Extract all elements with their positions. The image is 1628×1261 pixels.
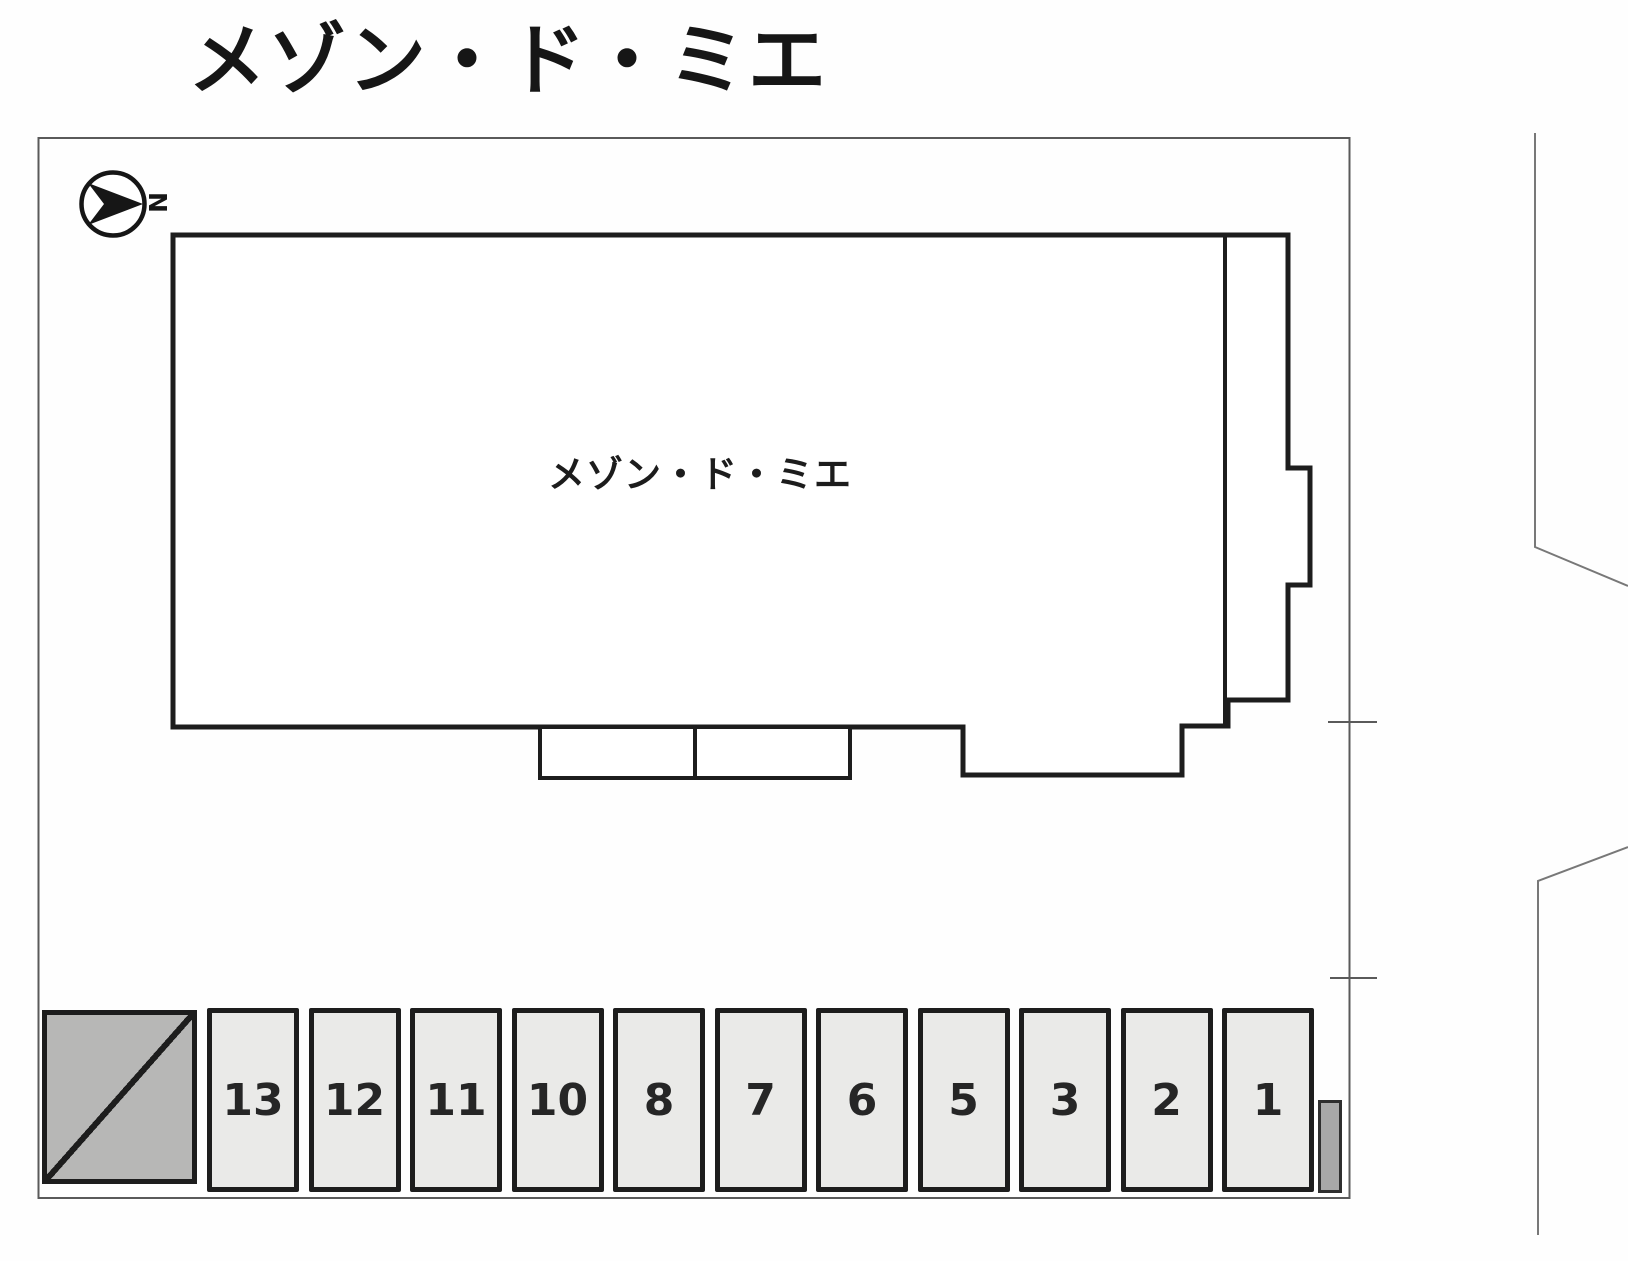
parking-space-label: 12	[324, 1075, 385, 1126]
parking-space-13: 13	[207, 1008, 299, 1192]
parking-space-label: 13	[222, 1075, 283, 1126]
porch-right	[695, 727, 850, 778]
parking-space-label: 7	[745, 1075, 776, 1126]
building-outline	[173, 235, 1310, 775]
parking-space-8: 8	[613, 1008, 705, 1192]
parking-space-10: 10	[512, 1008, 604, 1192]
parking-space-label: 11	[425, 1075, 486, 1126]
parking-space-label: 10	[527, 1075, 588, 1126]
gray-strip	[1318, 1100, 1342, 1193]
road-edge-lower	[1538, 847, 1628, 1235]
parking-space-11: 11	[410, 1008, 502, 1192]
parking-space-3: 3	[1019, 1008, 1111, 1192]
parking-space-12: 12	[309, 1008, 401, 1192]
site-plan-page: メゾン・ド・ミエ メゾン・ド・ミエ N 13 12 11 10 8 7 6	[0, 0, 1628, 1261]
parking-row: 13 12 11 10 8 7 6 5 3 2 1	[207, 1008, 1314, 1192]
parking-space-label: 1	[1253, 1075, 1284, 1126]
parking-space-label: 3	[1050, 1075, 1081, 1126]
parking-space-label: 8	[644, 1075, 675, 1126]
no-parking-hatched-area	[42, 1010, 197, 1184]
parking-space-2: 2	[1121, 1008, 1213, 1192]
parking-space-7: 7	[715, 1008, 807, 1192]
parking-space-label: 2	[1151, 1075, 1182, 1126]
porch-left	[540, 727, 695, 778]
road-edge-upper	[1535, 133, 1628, 586]
parking-space-label: 6	[847, 1075, 878, 1126]
parking-space-6: 6	[816, 1008, 908, 1192]
north-label: N	[145, 192, 170, 213]
parking-space-1: 1	[1222, 1008, 1314, 1192]
parking-space-5: 5	[918, 1008, 1010, 1192]
parking-space-label: 5	[948, 1075, 979, 1126]
building-label: メゾン・ド・ミエ	[400, 444, 1000, 498]
